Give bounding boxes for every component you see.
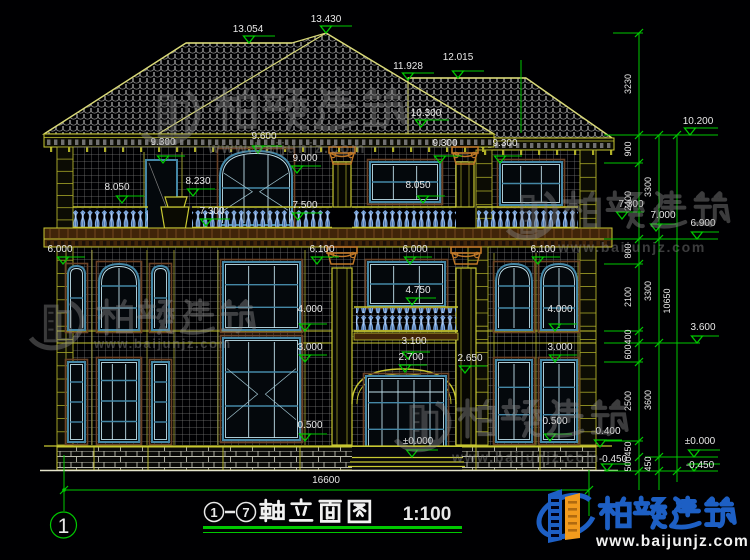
svg-text:6.100: 6.100: [309, 244, 334, 255]
svg-text:6.000: 6.000: [402, 244, 427, 255]
svg-text:13.430: 13.430: [311, 14, 342, 25]
svg-text:11.928: 11.928: [393, 61, 423, 72]
svg-text:3.600: 3.600: [690, 322, 715, 333]
svg-text:3300: 3300: [643, 177, 653, 197]
svg-text:7.500: 7.500: [292, 200, 317, 211]
svg-text:www.baijunjz.com: www.baijunjz.com: [595, 533, 749, 550]
svg-text:7.300: 7.300: [199, 206, 224, 217]
svg-text:10650: 10650: [662, 288, 672, 313]
svg-text:1: 1: [58, 515, 70, 538]
svg-text:3.000: 3.000: [297, 342, 322, 353]
svg-text:2.650: 2.650: [457, 353, 482, 364]
svg-text:3300: 3300: [643, 281, 653, 301]
svg-text:400: 400: [623, 329, 633, 344]
svg-text:3600: 3600: [643, 390, 653, 410]
svg-text:0.500: 0.500: [297, 420, 322, 431]
svg-text:2.700: 2.700: [398, 352, 423, 363]
svg-text:www.baijunjz.com: www.baijunjz.com: [557, 239, 706, 255]
svg-text:8.230: 8.230: [185, 176, 210, 187]
svg-text:9.300: 9.300: [432, 138, 457, 149]
svg-text:7: 7: [242, 505, 249, 520]
svg-text:1: 1: [210, 505, 217, 520]
svg-text:4.750: 4.750: [405, 285, 430, 296]
svg-text:±0.000: ±0.000: [685, 436, 716, 447]
svg-text:4.000: 4.000: [297, 304, 322, 315]
svg-text:1:100: 1:100: [403, 504, 452, 525]
svg-text:2100: 2100: [623, 287, 633, 307]
svg-text:www.baijunjz.com: www.baijunjz.com: [207, 140, 366, 157]
svg-text:8.050: 8.050: [104, 182, 129, 193]
svg-text:600: 600: [623, 344, 633, 359]
svg-text:12.015: 12.015: [443, 52, 474, 63]
svg-text:3230: 3230: [623, 74, 633, 94]
svg-text:-0.450: -0.450: [686, 460, 715, 471]
svg-text:13.054: 13.054: [233, 24, 264, 35]
svg-text:-0.450: -0.450: [599, 454, 628, 465]
svg-text:6.000: 6.000: [47, 244, 72, 255]
svg-text:4.000: 4.000: [547, 304, 572, 315]
svg-text:10.200: 10.200: [683, 116, 714, 127]
svg-text:www.baijunjz.com: www.baijunjz.com: [93, 336, 232, 351]
svg-text:450: 450: [643, 456, 653, 471]
svg-text:www.baijunjz.com: www.baijunjz.com: [451, 449, 600, 465]
svg-text:6.100: 6.100: [530, 244, 555, 255]
svg-text:9.300: 9.300: [492, 138, 517, 149]
svg-text:10.300: 10.300: [411, 108, 442, 119]
svg-text:8.050: 8.050: [405, 180, 430, 191]
svg-text:16600: 16600: [312, 475, 340, 486]
svg-text:3.100: 3.100: [401, 336, 426, 347]
svg-text:900: 900: [623, 141, 633, 156]
svg-text:3.000: 3.000: [547, 342, 572, 353]
